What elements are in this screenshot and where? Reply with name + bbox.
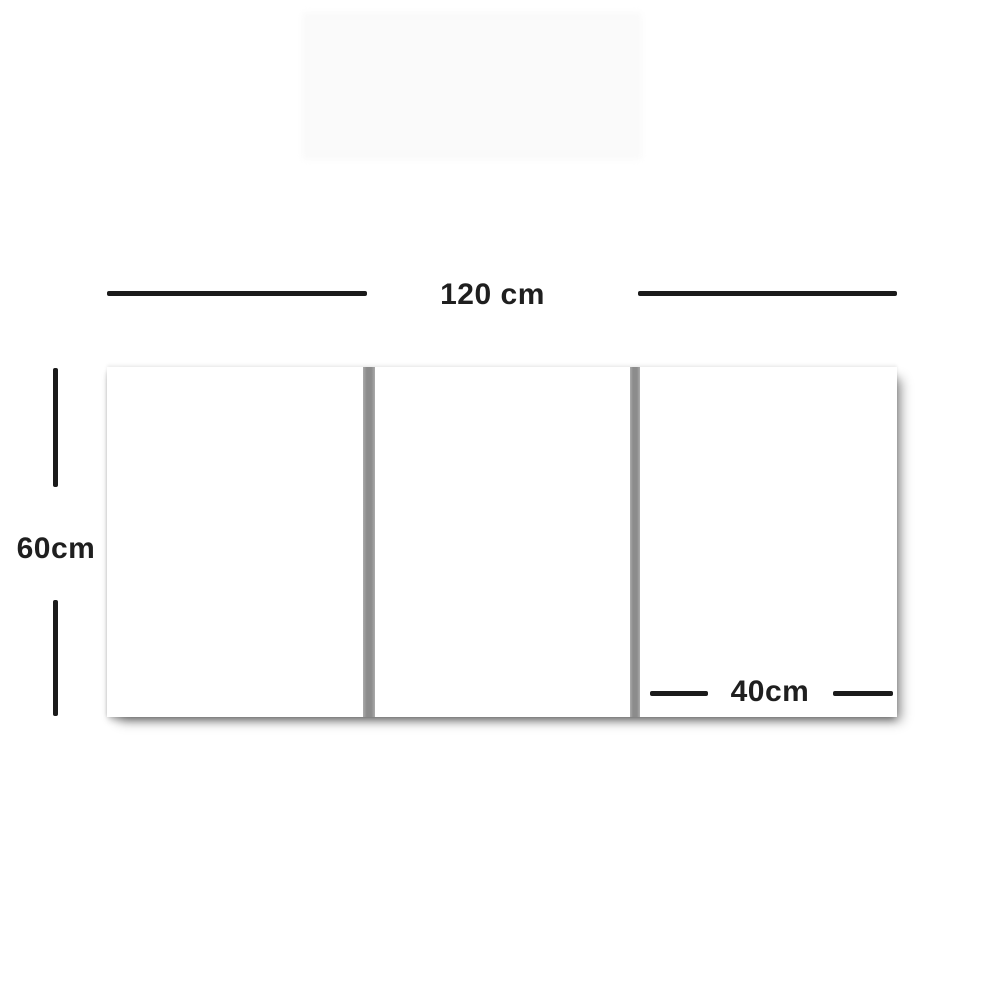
panel-row [107, 367, 897, 717]
width-dimension-line-left [107, 291, 367, 296]
height-dimension-line-top [53, 368, 58, 487]
panel-width-dimension-line-right [833, 691, 893, 696]
faint-watermark-block [302, 12, 642, 160]
panel-2 [375, 367, 630, 717]
width-dimension-line-right [638, 291, 897, 296]
height-dimension-label: 60cm [10, 531, 102, 567]
panel-gap-1 [363, 367, 375, 717]
panel-gap-2 [630, 367, 640, 717]
panel-width-dimension-label: 40cm [715, 674, 825, 710]
width-dimension-label: 120 cm [420, 277, 565, 313]
panel-width-dimension-line-left [650, 691, 708, 696]
panel-1 [107, 367, 363, 717]
height-dimension-line-bottom [53, 600, 58, 716]
panel-3 [640, 367, 897, 717]
canvas-dimension-diagram: 120 cm 60cm 40cm [0, 0, 1000, 1000]
